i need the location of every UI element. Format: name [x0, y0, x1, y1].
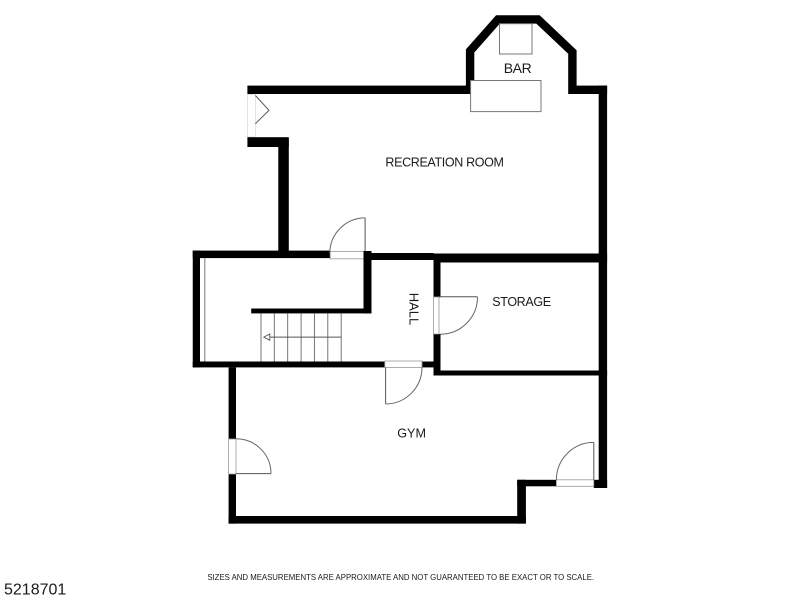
svg-text:5218701: 5218701 [4, 582, 66, 599]
svg-text:SIZES AND MEASUREMENTS ARE APP: SIZES AND MEASUREMENTS ARE APPROXIMATE A… [207, 573, 594, 582]
svg-text:HALL: HALL [407, 293, 422, 326]
svg-text:BAR: BAR [504, 60, 532, 76]
svg-text:GYM: GYM [397, 426, 426, 440]
svg-text:STORAGE: STORAGE [492, 295, 550, 309]
svg-text:RECREATION ROOM: RECREATION ROOM [385, 156, 503, 170]
